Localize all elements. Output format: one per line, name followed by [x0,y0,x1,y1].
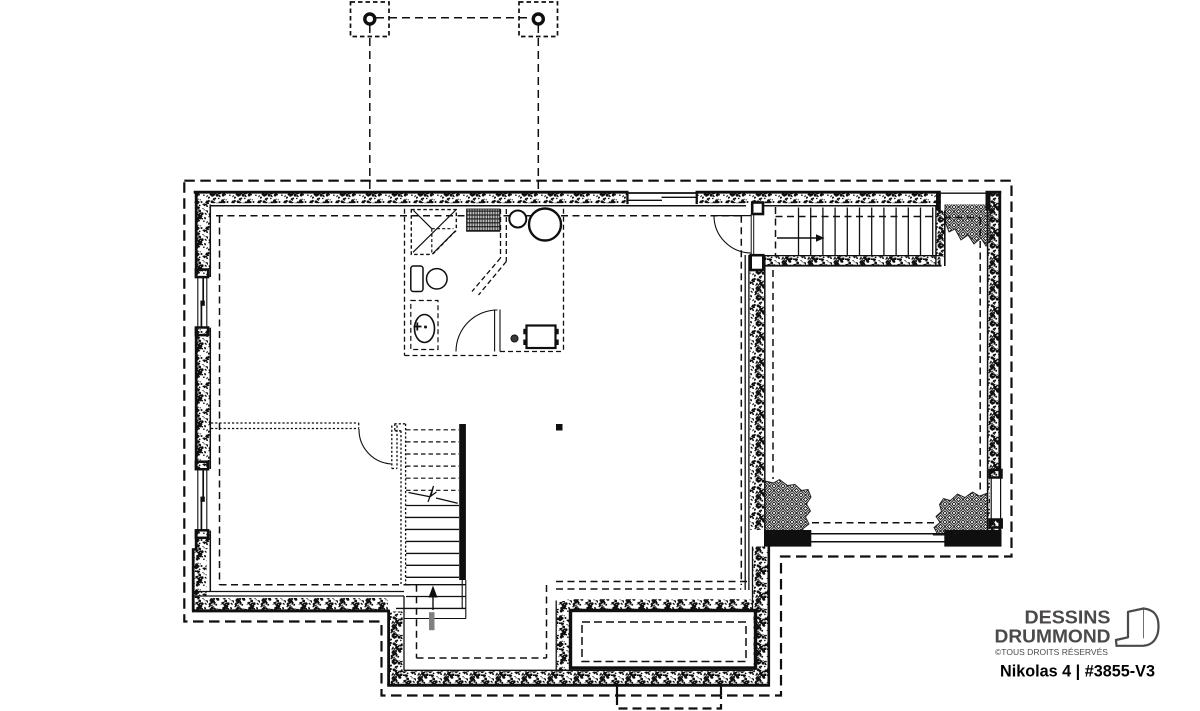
svg-text:©TOUS DROITS RÉSERVÉS: ©TOUS DROITS RÉSERVÉS [995,647,1108,657]
svg-text:DRUMMOND: DRUMMOND [995,626,1111,647]
svg-text:Nikolas 4 | #3855-V3: Nikolas 4 | #3855-V3 [1000,662,1155,681]
svg-text:DESSINS: DESSINS [1025,607,1111,628]
